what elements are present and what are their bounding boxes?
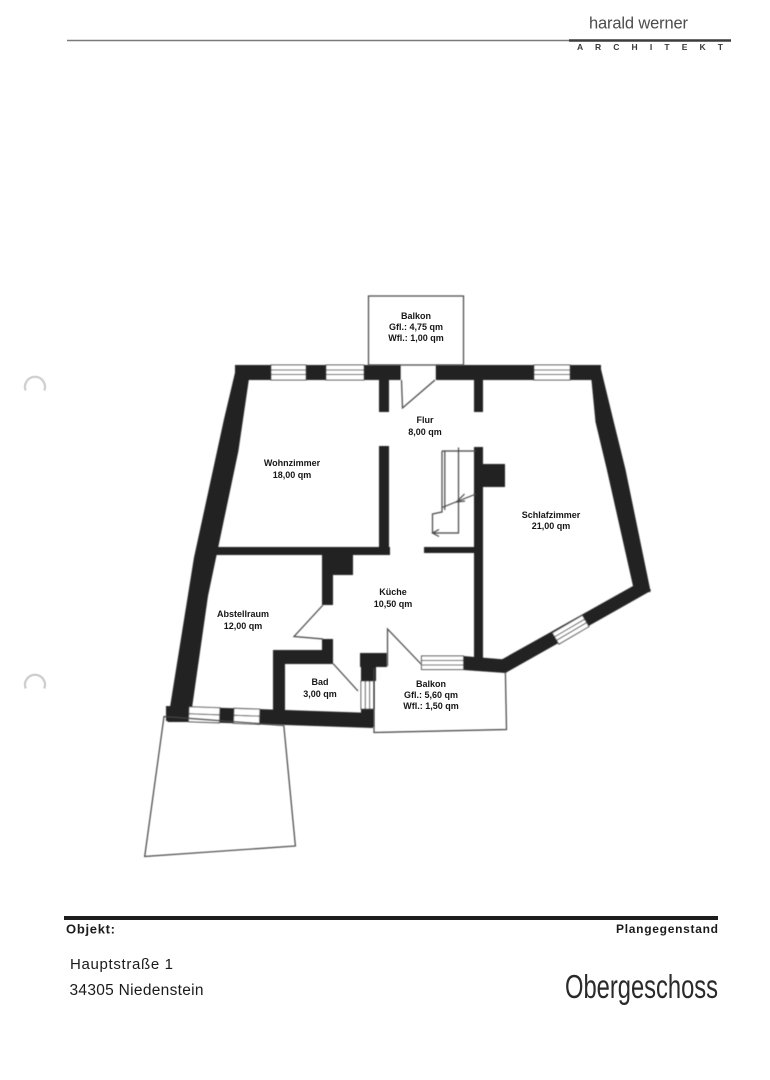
- svg-text:Balkon: Balkon: [416, 679, 446, 689]
- svg-text:harald werner: harald werner: [589, 15, 689, 33]
- svg-text:A R C H I T E K T: A R C H I T E K T: [577, 42, 724, 52]
- svg-text:Hauptstraße 1: Hauptstraße 1: [70, 956, 173, 973]
- svg-text:18,00 qm: 18,00 qm: [273, 470, 312, 480]
- svg-text:8,00 qm: 8,00 qm: [408, 427, 442, 437]
- svg-text:Objekt:: Objekt:: [66, 922, 115, 937]
- svg-text:Abstellraum: Abstellraum: [217, 609, 269, 619]
- svg-text:Flur: Flur: [417, 415, 434, 425]
- svg-text:Gfl.: 5,60 qm: Gfl.: 5,60 qm: [404, 690, 458, 700]
- svg-text:Gfl.: 4,75 qm: Gfl.: 4,75 qm: [389, 322, 443, 332]
- svg-text:21,00 qm: 21,00 qm: [532, 521, 571, 531]
- svg-text:Schlafzimmer: Schlafzimmer: [522, 510, 581, 520]
- svg-text:Wohnzimmer: Wohnzimmer: [264, 458, 321, 468]
- svg-text:34305 Niedenstein: 34305 Niedenstein: [70, 982, 204, 999]
- svg-text:12,00 qm: 12,00 qm: [224, 621, 263, 631]
- svg-text:3,00 qm: 3,00 qm: [303, 689, 337, 699]
- svg-text:Balkon: Balkon: [401, 311, 431, 321]
- svg-text:10,50 qm: 10,50 qm: [374, 599, 413, 609]
- svg-text:Plangegenstand: Plangegenstand: [616, 922, 718, 936]
- svg-text:Bad: Bad: [311, 677, 328, 687]
- svg-text:Wfl.: 1,00 qm: Wfl.: 1,00 qm: [388, 333, 444, 343]
- svg-text:Obergeschoss: Obergeschoss: [565, 968, 718, 1005]
- svg-text:Wfl.: 1,50 qm: Wfl.: 1,50 qm: [403, 701, 459, 711]
- svg-text:Küche: Küche: [379, 587, 407, 597]
